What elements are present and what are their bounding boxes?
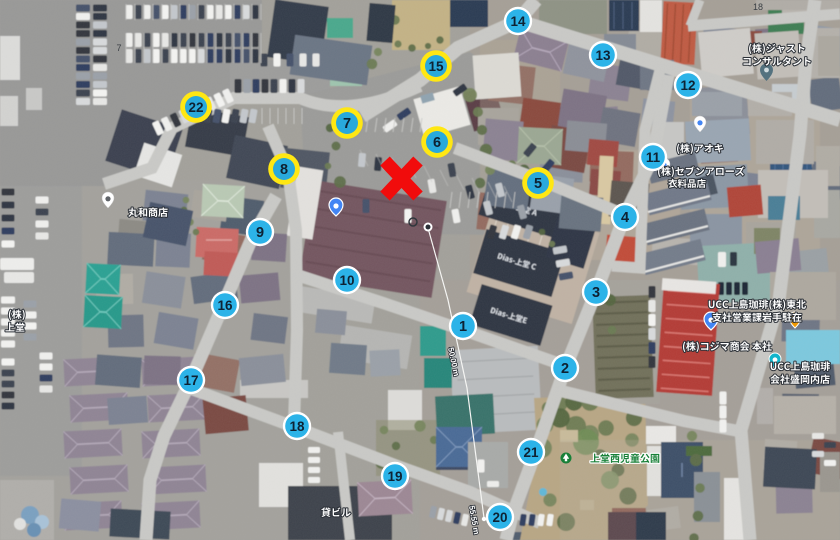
svg-text:21: 21 <box>523 445 539 460</box>
svg-text:15: 15 <box>428 59 444 74</box>
svg-text:17: 17 <box>183 373 198 388</box>
svg-text:3: 3 <box>592 285 600 301</box>
svg-text:2: 2 <box>561 361 569 377</box>
svg-text:13: 13 <box>595 48 611 63</box>
svg-text:4: 4 <box>621 210 629 226</box>
svg-text:7: 7 <box>116 43 121 53</box>
svg-text:10: 10 <box>339 273 354 288</box>
svg-text:5: 5 <box>534 176 542 192</box>
svg-text:14: 14 <box>510 14 526 29</box>
svg-text:20: 20 <box>492 510 507 525</box>
svg-text:1: 1 <box>459 319 467 335</box>
svg-text:19: 19 <box>387 469 402 484</box>
svg-text:12: 12 <box>680 78 695 93</box>
svg-text:11: 11 <box>646 150 661 165</box>
svg-text:18: 18 <box>289 419 305 434</box>
svg-text:7: 7 <box>343 116 351 132</box>
svg-text:6: 6 <box>433 135 441 151</box>
svg-text:16: 16 <box>217 298 233 313</box>
svg-text:9: 9 <box>256 225 264 241</box>
svg-text:22: 22 <box>188 100 203 115</box>
svg-text:18: 18 <box>753 2 763 12</box>
svg-text:8: 8 <box>280 162 288 178</box>
